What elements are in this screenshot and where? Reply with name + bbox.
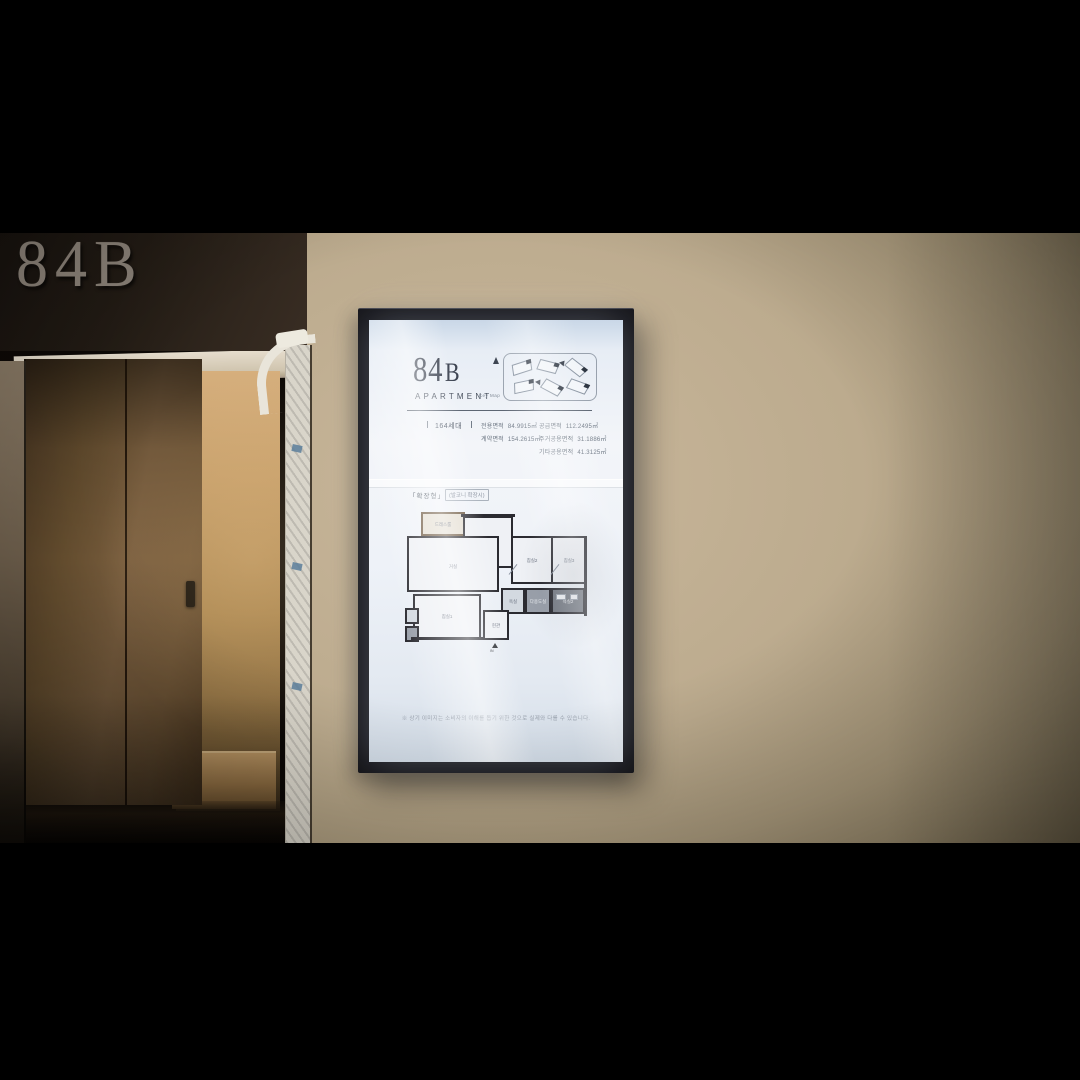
signage-frame: 84B APARTMENT Key Map	[358, 308, 634, 773]
room-bed1: 침실1	[413, 594, 481, 640]
wood-door-panels	[24, 359, 202, 805]
door-panel-seam	[125, 359, 127, 805]
lightbox-panel-seam	[369, 479, 623, 488]
entrance-arrow-icon	[492, 643, 498, 648]
header-divider	[407, 410, 592, 411]
wall-segment	[584, 536, 587, 616]
blue-tape	[291, 562, 302, 571]
disclaimer-text: ※ 상기 이미지는 소비자의 이해를 돕기 위한 것으로 실제와 다를 수 있습…	[369, 714, 623, 722]
signage-screen: 84B APARTMENT Key Map	[369, 320, 623, 762]
building-block-icon	[536, 359, 560, 374]
wall-segment	[411, 637, 483, 640]
letterboxed-photo: 84B 84B	[0, 0, 1080, 1080]
key-map-caption: Key Map	[479, 393, 500, 398]
room-entrance: 현관	[483, 610, 509, 640]
doorway-interior	[0, 351, 307, 843]
north-arrow-icon	[493, 357, 499, 364]
area-row: 전용면적84.9915㎡	[481, 421, 537, 430]
unit-letter: B	[445, 358, 460, 388]
households-count: 164세대	[435, 421, 462, 431]
blue-tape	[291, 444, 302, 453]
room-bed2: 침실2	[511, 536, 553, 584]
blue-tape	[291, 682, 302, 691]
building-block-icon	[564, 358, 588, 378]
floor-plan: 드레스룸 주방/식당 거실 침실2 침실3 침실1	[405, 512, 589, 646]
separator-bar	[471, 421, 472, 428]
area-row: 주거공용면적31.1886㎡	[539, 434, 607, 443]
hall-unit-sign: 84B	[16, 233, 144, 302]
building-block-icon	[540, 378, 564, 396]
area-row: 계약면적154.2615㎡	[481, 434, 541, 443]
room-bath2: 욕실2	[551, 588, 585, 614]
door-handle	[186, 581, 195, 607]
wall-segment	[461, 514, 515, 517]
unit-title: 84B	[413, 350, 467, 390]
room-ac-unit	[405, 608, 419, 624]
area-row: 공급면적112.2495㎡	[539, 421, 598, 430]
plan-type-label: 「확장형」	[409, 490, 445, 500]
unit-number: 84	[413, 350, 443, 390]
room-utility: 다용도실	[525, 588, 551, 614]
key-map	[503, 353, 597, 401]
entrance-mark: IN	[490, 649, 494, 653]
left-jamb-wall	[0, 361, 26, 843]
interior-floor	[0, 801, 307, 843]
building-block-icon	[514, 379, 534, 394]
plan-type-note: (발코니 확장시)	[445, 489, 489, 501]
room-bed3: 침실3	[551, 536, 587, 584]
building-block-icon	[566, 378, 590, 395]
building-block-icon	[512, 359, 533, 376]
area-row: 기타공용면적41.3125㎡	[539, 447, 607, 456]
separator-bar	[427, 421, 428, 428]
hallway-photo: 84B 84B	[0, 233, 1080, 843]
room-living: 거실	[407, 536, 499, 592]
door-frame-protective-film	[285, 345, 312, 843]
room-dress: 드레스룸	[421, 512, 465, 536]
